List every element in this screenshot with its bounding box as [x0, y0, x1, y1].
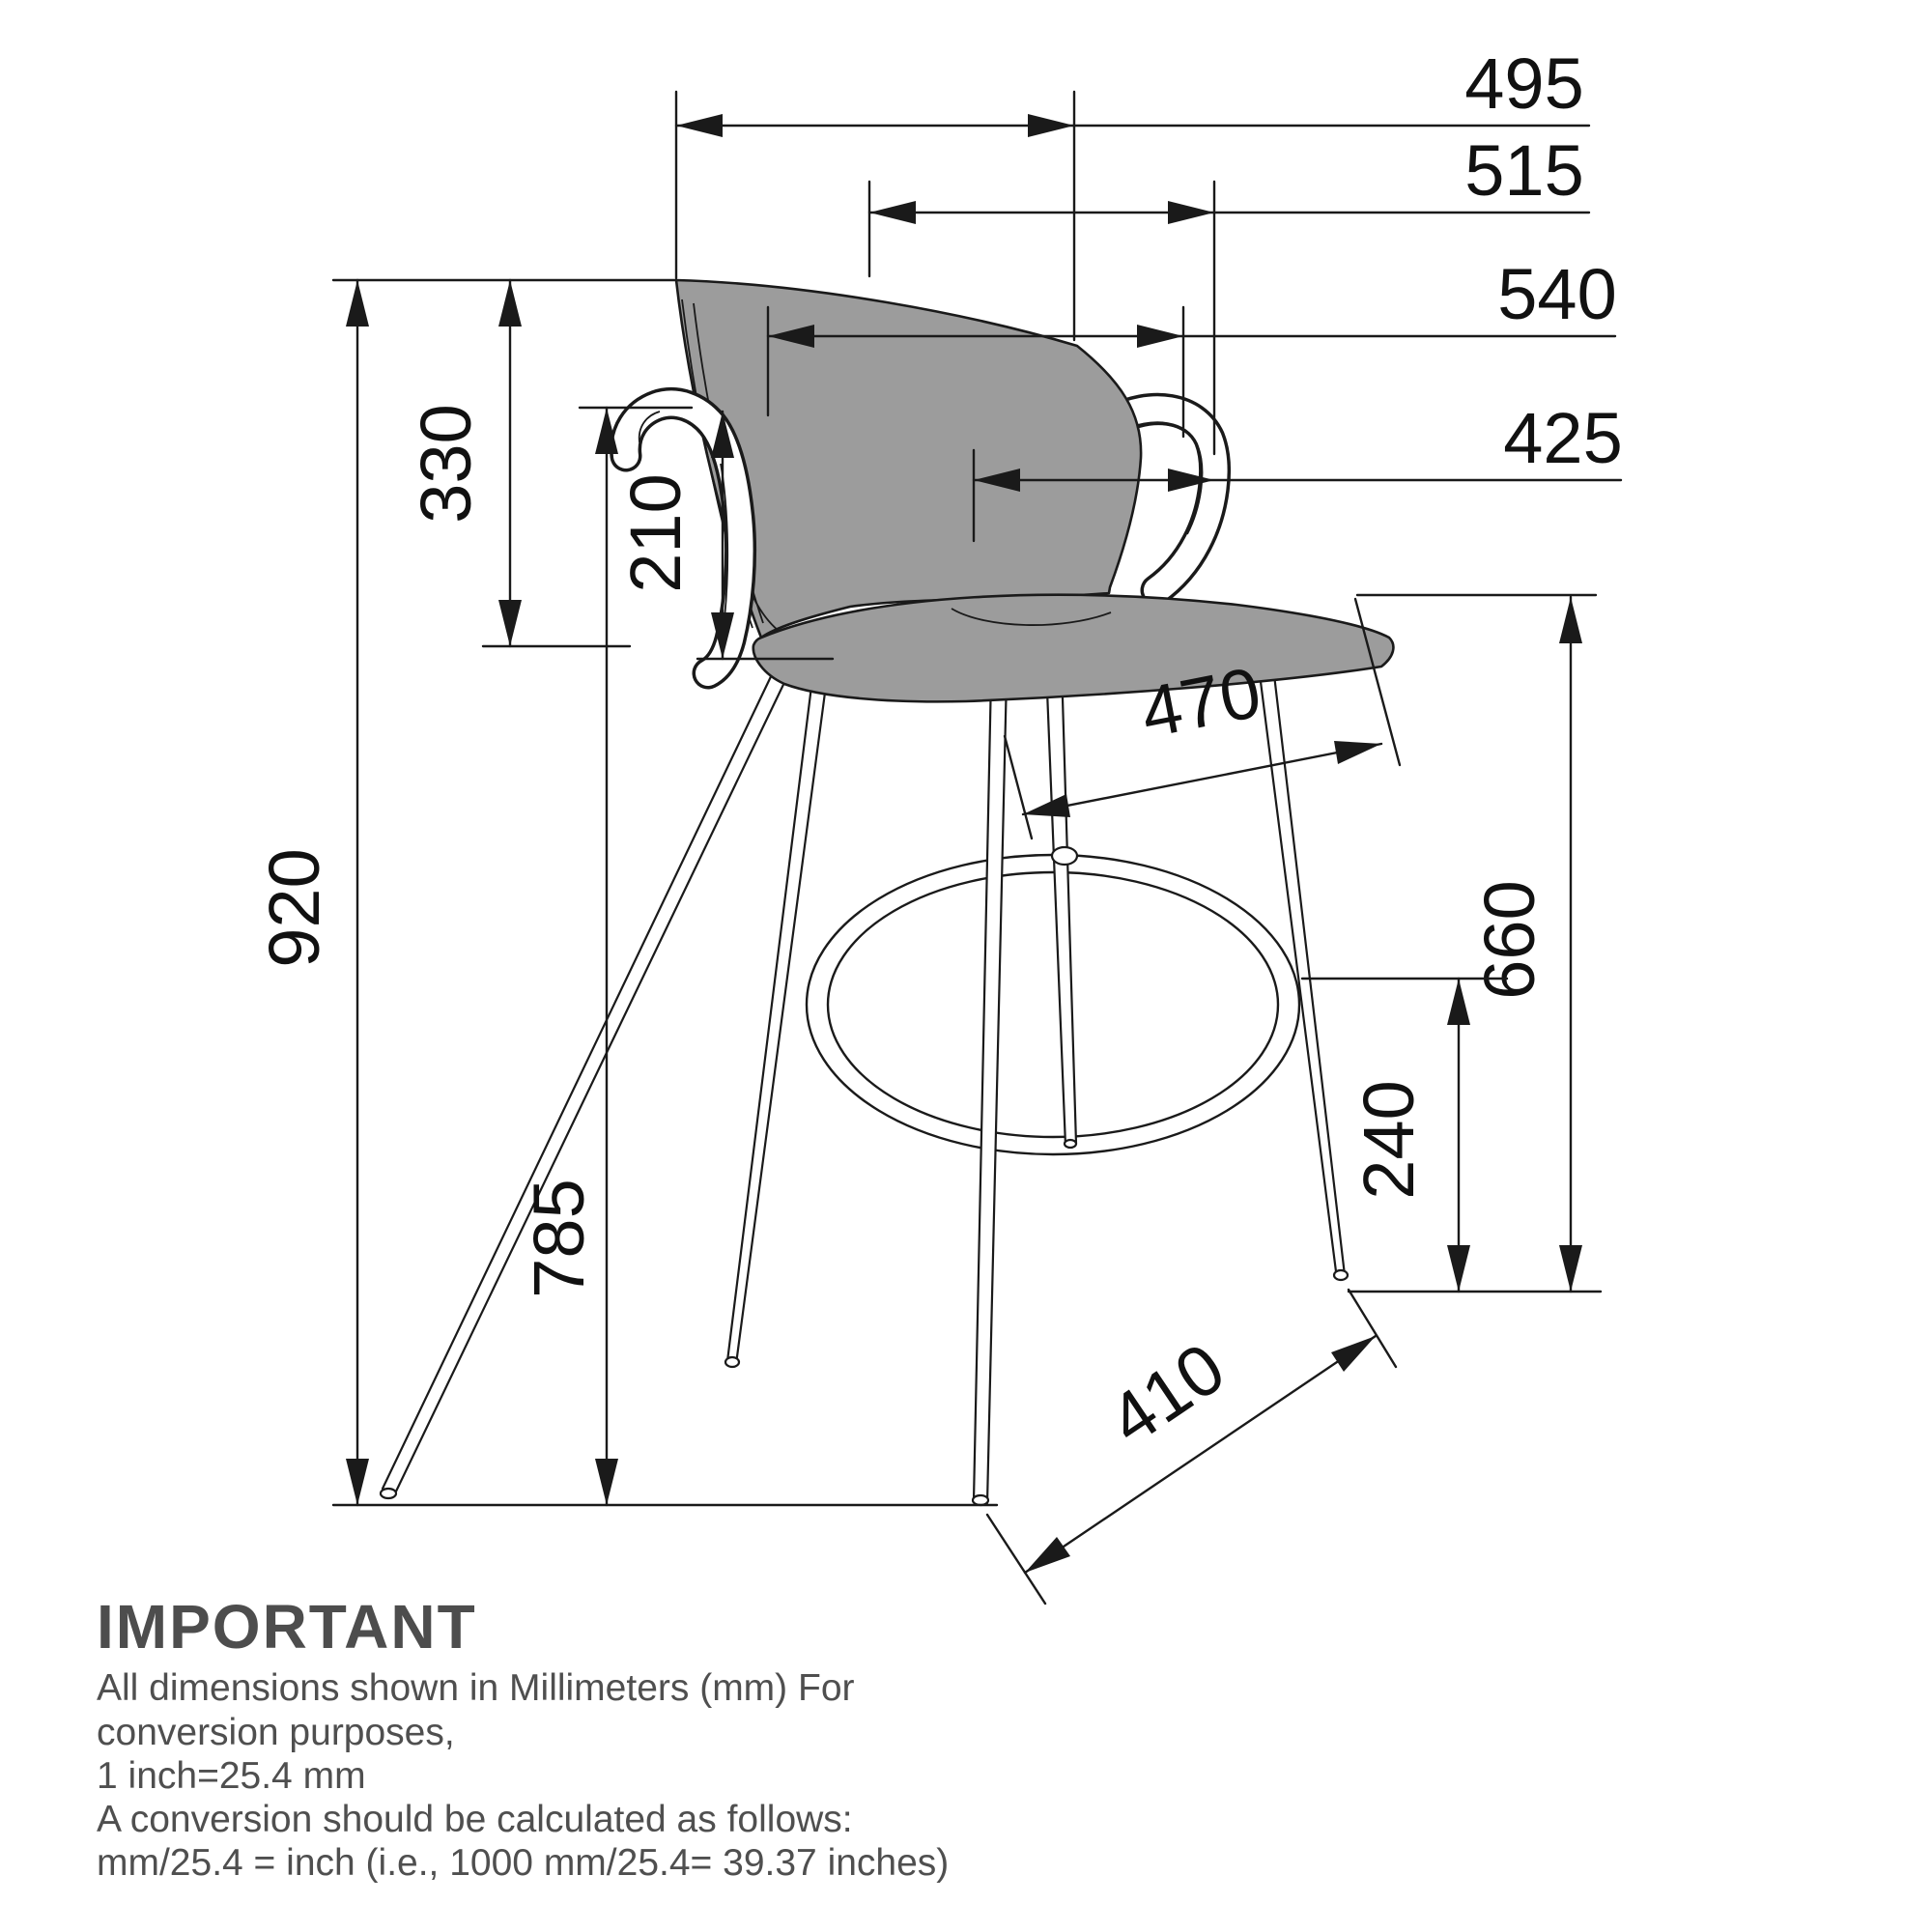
footring	[807, 855, 1299, 1154]
note-line-5: mm/25.4 = inch (i.e., 1000 mm/25.4= 39.3…	[97, 1842, 949, 1884]
dim-label-515: 515	[1464, 130, 1583, 211]
note-line-4: A conversion should be calculated as fol…	[97, 1799, 853, 1840]
front-left-leg	[383, 668, 790, 1495]
dim-label-330: 330	[406, 404, 486, 523]
note-line-3: 1 inch=25.4 mm	[97, 1755, 366, 1797]
seat	[753, 595, 1394, 702]
note-heading: IMPORTANT	[97, 1592, 477, 1662]
dimension-410: 410	[987, 1290, 1396, 1604]
center-post	[1046, 667, 1076, 1146]
back-right-foot	[1334, 1270, 1348, 1280]
important-note: IMPORTANT All dimensions shown in Millim…	[97, 1592, 949, 1884]
dim-label-540: 540	[1497, 254, 1616, 334]
stool-illustration	[381, 280, 1393, 1505]
front-right-foot	[973, 1495, 988, 1505]
dim-label-425: 425	[1503, 398, 1622, 478]
front-right-leg	[974, 676, 1007, 1503]
dim-label-210: 210	[615, 473, 696, 592]
dim-label-785: 785	[519, 1179, 599, 1297]
dim-label-495: 495	[1464, 43, 1583, 124]
dim-label-240: 240	[1349, 1080, 1429, 1199]
dimension-330: 330	[406, 280, 630, 646]
barstool-dimension-drawing: 495 515 540 425 920	[0, 0, 1932, 1932]
back-left-foot	[725, 1357, 739, 1367]
technical-drawing-page: 495 515 540 425 920	[0, 0, 1932, 1932]
dim-label-660: 660	[1469, 880, 1549, 999]
note-line-1: All dimensions shown in Millimeters (mm)…	[97, 1667, 855, 1709]
dim-label-920: 920	[254, 848, 334, 967]
front-left-foot	[381, 1489, 396, 1498]
note-line-2: conversion purposes,	[97, 1712, 455, 1753]
center-post-tip	[1065, 1140, 1076, 1148]
dim-label-410: 410	[1094, 1327, 1238, 1461]
footring-hub	[1052, 847, 1077, 865]
